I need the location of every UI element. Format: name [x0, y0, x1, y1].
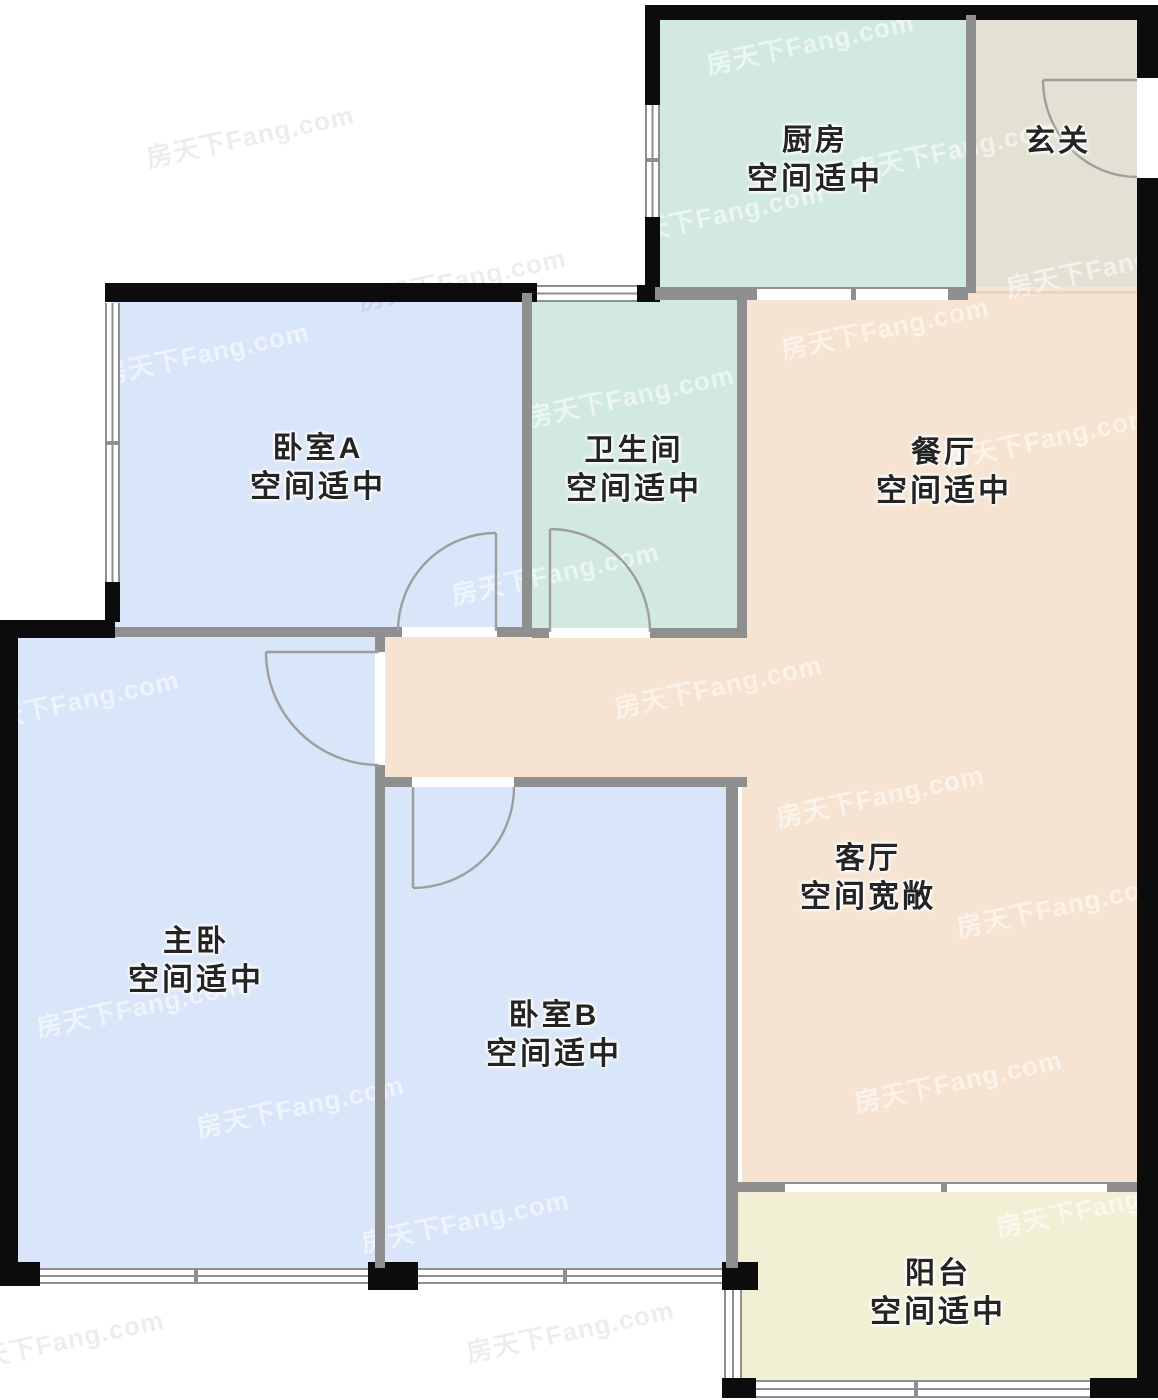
floor-plan: 房天下Fang.com房天下Fang.com房天下Fang.com房天下Fang…: [0, 0, 1158, 1400]
bedroom-b-door-arc: [413, 787, 514, 888]
room-label-living: 客厅空间宽敞: [800, 840, 936, 916]
room-label-bathroom: 卫生间空间适中: [566, 432, 702, 508]
bedroom-a-door-arc: [398, 533, 496, 631]
room-label-master: 主卧空间适中: [128, 923, 264, 999]
master-door-arc: [266, 652, 379, 765]
room-label-bedroom-a: 卧室A空间适中: [250, 430, 386, 506]
door-arcs: [0, 0, 1158, 1400]
room-label-entry: 玄关: [1025, 123, 1091, 161]
room-label-kitchen: 厨房空间适中: [747, 122, 883, 198]
room-label-dining: 餐厅空间适中: [876, 434, 1012, 510]
room-label-balcony: 阳台空间适中: [870, 1255, 1006, 1331]
room-label-bedroom-b: 卧室B空间适中: [486, 997, 622, 1073]
bathroom-door-arc: [550, 529, 650, 632]
